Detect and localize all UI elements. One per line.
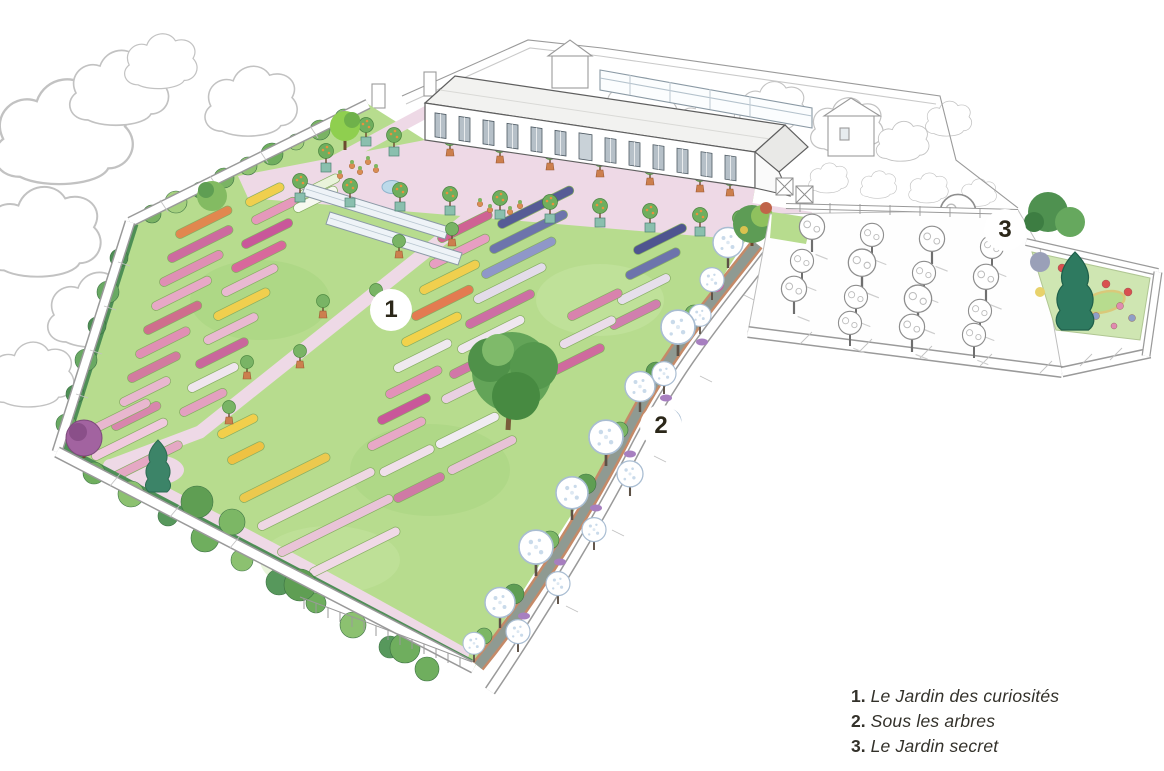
legend-item-1: 1.Le Jardin des curiosités [851, 684, 1059, 709]
map-marker-3[interactable]: 3 [984, 209, 1026, 251]
legend-item-number: 3. [851, 736, 866, 756]
legend-item-2: 2.Sous les arbres [851, 709, 1059, 734]
garden-map: 1 2 3 1.Le Jardin des curiosités 2.Sous … [0, 0, 1164, 771]
legend-item-number: 1. [851, 686, 866, 706]
garden-illustration [0, 0, 1164, 771]
map-marker-2[interactable]: 2 [640, 405, 682, 447]
legend-item-label: Le Jardin des curiosités [871, 686, 1060, 706]
legend: 1.Le Jardin des curiosités 2.Sous les ar… [851, 684, 1059, 759]
legend-item-label: Le Jardin secret [871, 736, 999, 756]
legend-item-label: Sous les arbres [871, 711, 996, 731]
orchard-gate [776, 178, 813, 203]
legend-item-3: 3.Le Jardin secret [851, 734, 1059, 759]
legend-item-number: 2. [851, 711, 866, 731]
map-marker-1[interactable]: 1 [370, 289, 412, 331]
